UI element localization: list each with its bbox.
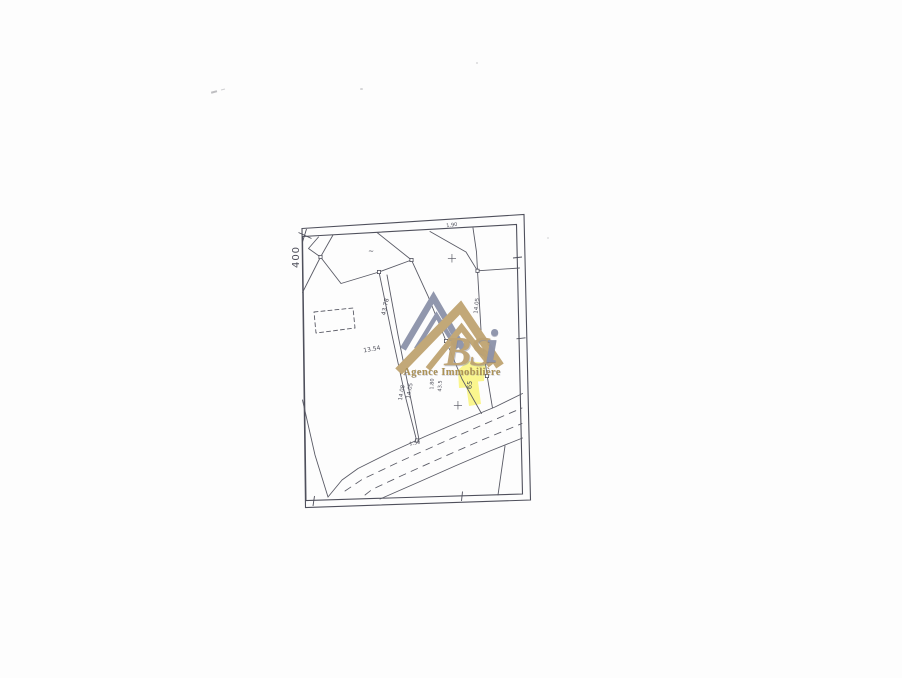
scan-artifact: [476, 62, 478, 64]
road-centerline-1: [345, 408, 522, 491]
scanned-plan-page: BSi Agence Immobilière 400 1.90 ~ + 13.5…: [0, 0, 902, 678]
measurement-label: 43.5: [438, 380, 443, 391]
survey-cross: +: [453, 400, 464, 413]
watermark-subtitle: Agence Immobilière: [398, 367, 506, 378]
watermark-letter-i: i: [485, 320, 498, 373]
road-top-edge: [328, 394, 523, 498]
map-squiggle-mark: ~: [368, 249, 374, 256]
survey-cross: +: [447, 253, 458, 266]
scan-artifact: [360, 88, 363, 90]
highlighted-parcel-number: 65: [466, 381, 473, 390]
building-footprint: [314, 308, 355, 333]
measurement-label: 1.80: [430, 378, 435, 389]
road-centerline-2: [365, 424, 522, 496]
parcel-number-label: 400: [292, 246, 302, 268]
scan-artifact: [547, 237, 549, 239]
